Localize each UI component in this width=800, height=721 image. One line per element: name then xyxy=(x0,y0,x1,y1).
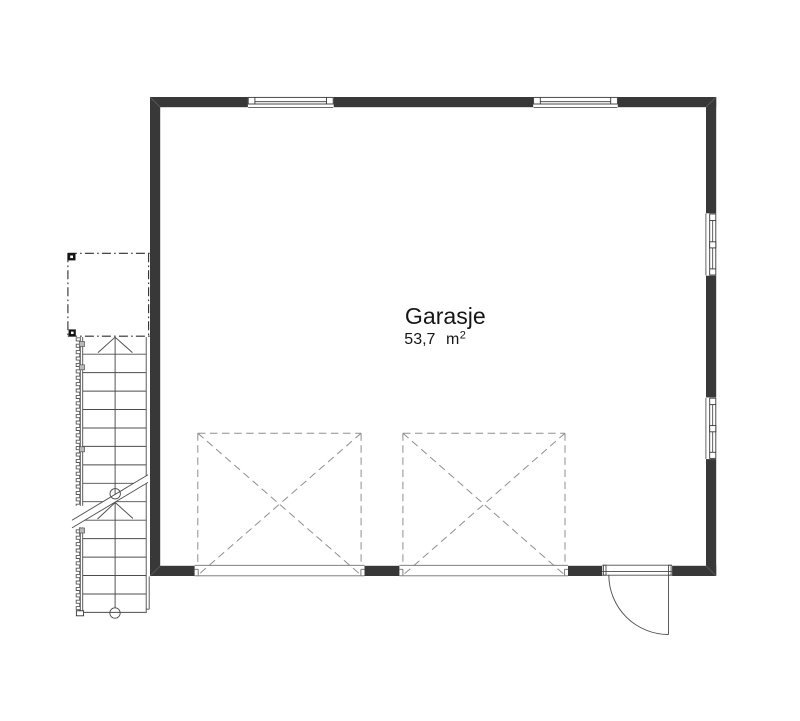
svg-text:m: m xyxy=(446,331,459,348)
svg-text:Garasje: Garasje xyxy=(405,303,486,329)
svg-text:2: 2 xyxy=(460,329,466,341)
svg-text:53,7: 53,7 xyxy=(404,331,435,348)
